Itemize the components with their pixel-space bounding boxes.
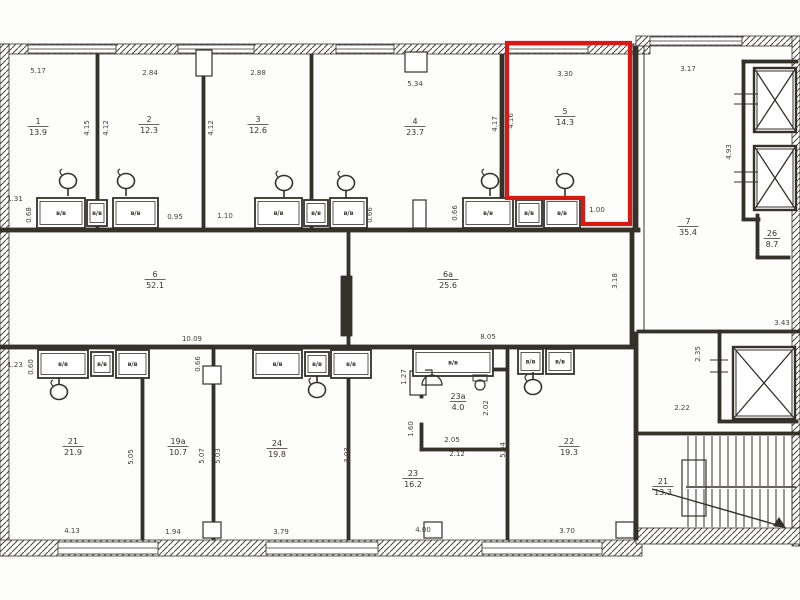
- sink-bowl: [118, 174, 135, 189]
- dimension-label: 4.13: [64, 527, 80, 535]
- sink-tap: [309, 378, 311, 384]
- room-number: 1: [35, 117, 40, 126]
- stair-21-label: 2113.3: [653, 477, 674, 497]
- vv-cabinet-label: в/в: [273, 361, 283, 368]
- dimension-label: 5.04: [499, 442, 507, 458]
- dimension-label: 1.60: [407, 421, 415, 437]
- dimension-label: 10.09: [182, 335, 202, 343]
- sink-icon: [60, 169, 77, 196]
- dimension-label: 2.22: [674, 404, 690, 412]
- dimension-label: 1.27: [400, 369, 408, 385]
- room-3-label: 312.6: [248, 115, 269, 135]
- sink-icon: [309, 375, 326, 398]
- room-area: 10.7: [169, 448, 187, 457]
- interior-wall: [742, 60, 745, 220]
- sink-icon: [118, 169, 135, 196]
- room-number: 21: [68, 437, 78, 446]
- room-4-label: 423.7: [405, 117, 426, 137]
- room-area: 8.7: [766, 240, 779, 249]
- dimension-label: 3.30: [557, 70, 573, 78]
- dimension-label: 5.07: [198, 448, 206, 464]
- elevator-shaft: [733, 347, 795, 419]
- dimension-label: 3.70: [559, 527, 575, 535]
- dimension-label: 4.00: [415, 526, 431, 534]
- sink-bowl: [276, 176, 293, 191]
- sink-icon: [338, 171, 355, 198]
- room-area: 35.4: [679, 228, 697, 237]
- dimension-label: 0.66: [366, 207, 374, 223]
- sink-icon: [51, 377, 68, 400]
- floor-plan: в/вв/вв/вв/вв/вв/вв/вв/вв/вв/вв/вв/вв/вв…: [0, 0, 800, 600]
- room-23a-label: 23а4.0: [450, 392, 467, 412]
- interior-wall: [756, 256, 790, 259]
- vv-cabinet-label: в/в: [524, 210, 534, 217]
- dimension-label: 5.03: [214, 448, 222, 464]
- room-area: 52.1: [146, 281, 164, 290]
- sink-tap: [525, 375, 527, 381]
- vv-cabinet-label: в/в: [555, 359, 565, 366]
- dimension-label: 2.35: [694, 346, 702, 362]
- wall-pier: [682, 460, 706, 516]
- exterior-wall: [636, 528, 800, 544]
- room-number: 24: [272, 439, 282, 448]
- room-number: 22: [564, 437, 574, 446]
- room-22-label: 2219.3: [559, 437, 580, 457]
- room-area: 19.8: [268, 450, 286, 459]
- vv-cabinet-label: в/в: [311, 210, 321, 217]
- sink-tap: [276, 171, 278, 177]
- room-23-label: 2316.2: [403, 469, 424, 489]
- vv-cabinet-label: в/в: [97, 361, 107, 368]
- room-number: 4: [412, 117, 417, 126]
- dimension-label: 3.18: [611, 273, 619, 289]
- vv-cabinet-label: в/в: [526, 359, 536, 366]
- elevator-shaft: [754, 68, 796, 132]
- room-number: 6: [152, 270, 157, 279]
- interior-wall: [633, 46, 638, 230]
- room-area: 13.9: [29, 128, 47, 137]
- room-1-label: 113.9: [28, 117, 49, 137]
- vv-cabinet-label: в/в: [346, 361, 356, 368]
- room-area: 4.0: [452, 403, 465, 412]
- room-area: 12.6: [249, 126, 267, 135]
- wall-pier: [203, 522, 221, 538]
- elevator-shaft: [754, 146, 796, 210]
- dimension-label: 2.02: [482, 400, 490, 416]
- room-number: 23а: [450, 392, 465, 401]
- interior-wall: [718, 420, 798, 423]
- vv-cabinet-label: в/в: [312, 361, 322, 368]
- vv-cabinet-label: в/в: [131, 210, 141, 217]
- sink-tap: [51, 380, 53, 386]
- room-area: 19.3: [560, 448, 578, 457]
- dimension-label: 0.66: [194, 356, 202, 372]
- wall-pier: [405, 52, 427, 72]
- room-24-label: 2419.8: [267, 439, 288, 459]
- vv-cabinet-label: в/в: [483, 210, 493, 217]
- dimension-label: 4.93: [725, 144, 733, 160]
- interior-wall: [742, 60, 798, 63]
- wall-pier: [196, 50, 212, 76]
- dimension-label: 2.12: [449, 450, 465, 458]
- interior-wall: [756, 214, 759, 258]
- room-area: 16.2: [404, 480, 422, 489]
- room-number: 3: [255, 115, 260, 124]
- dimension-label: 4.17: [491, 116, 499, 132]
- dimension-label: 1.23: [7, 361, 23, 369]
- room-number: 2: [146, 115, 151, 124]
- sink-icon: [482, 169, 499, 196]
- room-area: 23.7: [406, 128, 424, 137]
- dimension-label: 2.84: [142, 69, 158, 77]
- room-7-label: 735.4: [678, 217, 699, 237]
- floor-plan-svg: в/вв/вв/вв/вв/вв/вв/вв/вв/вв/вв/вв/вв/вв…: [0, 0, 800, 600]
- sink-bowl: [51, 385, 68, 400]
- dimension-label: 3.79: [273, 528, 289, 536]
- sink-bowl: [525, 380, 542, 395]
- dimension-label: 4.12: [102, 120, 110, 136]
- sink-icon: [557, 169, 574, 196]
- room-number: 7: [685, 217, 690, 226]
- dimension-label: 0.95: [167, 213, 183, 221]
- sink-bowl: [557, 174, 574, 189]
- dimension-label: 1.00: [589, 206, 605, 214]
- sink-bowl: [482, 174, 499, 189]
- sink-tap: [557, 169, 559, 175]
- dimension-label: 8.05: [480, 333, 496, 341]
- sink-icon: [276, 171, 293, 198]
- room-5-label: 514.3: [555, 107, 576, 127]
- vv-cabinet-label: в/в: [92, 210, 102, 217]
- sink-tap: [60, 169, 62, 175]
- vv-cabinet-label: в/в: [274, 210, 284, 217]
- dimension-label: 1.94: [165, 528, 181, 536]
- sink-bowl: [338, 176, 355, 191]
- dimension-label: 5.17: [30, 67, 46, 75]
- wall-pier: [203, 366, 221, 384]
- wall-column: [341, 276, 352, 336]
- room-26-label: 268.7: [764, 229, 781, 249]
- vv-cabinet-label: в/в: [56, 210, 66, 217]
- room-19a-label: 19а10.7: [168, 437, 189, 457]
- room-number: 21: [658, 477, 668, 486]
- sink-tap: [482, 169, 484, 175]
- sink-tap: [338, 171, 340, 177]
- interior-wall: [420, 423, 423, 451]
- dimension-label: 2.88: [250, 69, 266, 77]
- dimension-label: 3.43: [774, 319, 790, 327]
- dimension-label: 5.34: [407, 80, 423, 88]
- dimension-label: 0.66: [451, 205, 459, 221]
- vv-cabinet-label: в/в: [557, 210, 567, 217]
- vv-cabinet-label: в/в: [344, 210, 354, 217]
- wall-pier: [413, 200, 426, 228]
- dimension-label: 5.05: [127, 449, 135, 465]
- dimension-label: 0.68: [25, 207, 33, 223]
- dimension-label: 3.17: [680, 65, 696, 73]
- room-number: 6а: [443, 270, 453, 279]
- vv-cabinet-label: в/в: [128, 361, 138, 368]
- interior-wall: [634, 332, 638, 540]
- room-area: 14.3: [556, 118, 574, 127]
- dimension-label: 1.10: [217, 212, 233, 220]
- vv-cabinet-label: в/в: [448, 360, 458, 367]
- dimension-label: 4.15: [83, 120, 91, 136]
- room-6a-label: 6а25.6: [438, 270, 459, 290]
- room-area: 21.9: [64, 448, 82, 457]
- room-area: 25.6: [439, 281, 457, 290]
- sink-tap: [118, 169, 120, 175]
- room-number: 19а: [170, 437, 185, 446]
- dimension-label: 0.60: [27, 359, 35, 375]
- wall-pier: [616, 522, 634, 538]
- room-2-label: 212.3: [139, 115, 160, 135]
- room-number: 5: [562, 107, 567, 116]
- interior-wall: [202, 54, 205, 228]
- dimension-label: 2.05: [444, 436, 460, 444]
- interior-wall: [630, 232, 634, 345]
- room-number: 23: [408, 469, 418, 478]
- room-number: 26: [767, 229, 777, 238]
- dimension-label: 3.03: [343, 447, 351, 463]
- interior-wall: [636, 432, 800, 435]
- room-area: 12.3: [140, 126, 158, 135]
- plan-ink-layer: в/вв/вв/вв/вв/вв/вв/вв/вв/вв/вв/вв/вв/вв…: [0, 36, 800, 556]
- interior-wall: [718, 330, 721, 422]
- room-21-label: 2121.9: [63, 437, 84, 457]
- exterior-wall: [0, 44, 9, 556]
- dimension-label: 1.31: [7, 195, 23, 203]
- room-area: 13.3: [654, 488, 672, 497]
- sink-bowl: [309, 383, 326, 398]
- sink-bowl: [60, 174, 77, 189]
- vv-cabinet-label: в/в: [58, 361, 68, 368]
- sink-icon: [525, 372, 542, 395]
- room-6-label: 652.1: [145, 270, 166, 290]
- dimension-label: 4.12: [207, 120, 215, 136]
